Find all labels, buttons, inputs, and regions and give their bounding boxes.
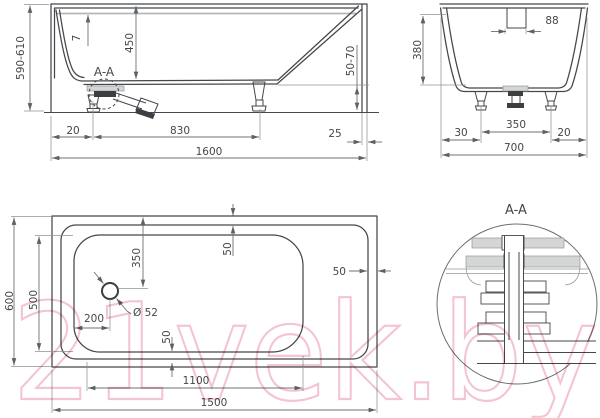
dim-label-side-height: 590-610 [15,36,27,80]
dim-label-side-foot-range: 50-70 [345,46,357,77]
bathtub-technical-drawing: 590-610 7 450 A-A 20 830 25 50-70 1600 [0,0,600,418]
watermark-text: 21vek.by [12,275,598,418]
dim-label-side-depth: 450 [124,33,136,53]
dim-label-side-right-offset: 25 [328,128,341,140]
dim-label-side-total-length: 1600 [196,146,223,158]
side-elevation-view: 590-610 7 450 A-A 20 830 25 50-70 1600 [15,4,382,161]
end-drain-assembly [503,86,528,108]
overflow-notch [507,8,526,28]
side-dimensions: 590-610 7 450 A-A 20 830 25 50-70 1600 [15,5,382,162]
dim-label-end-overflow: 88 [545,15,558,27]
end-elevation-view: 88 380 30 350 20 700 [412,4,588,158]
end-tub-outline [440,4,588,92]
section-detail-title: A-A [505,203,527,218]
dim-label-plan-drain-from-edge: 350 [131,248,143,268]
dim-label-end-depth: 380 [412,40,424,60]
dim-label-end-right-offset: 20 [557,127,570,139]
dim-label-side-rim: 7 [71,35,83,42]
dim-label-side-feet-spacing: 830 [170,125,190,137]
dim-label-end-left-offset: 30 [454,127,467,139]
dim-label-plan-rim-top: 50 [222,242,234,255]
dim-label-side-left-offset: 20 [66,125,79,137]
dim-label-end-feet-spacing: 350 [506,119,526,131]
dim-label-end-total-width: 700 [504,142,524,154]
section-label-side: A-A [94,65,115,79]
end-dimensions: 88 380 30 350 20 700 [412,15,587,159]
drawing-canvas: 590-610 7 450 A-A 20 830 25 50-70 1600 [0,0,600,418]
